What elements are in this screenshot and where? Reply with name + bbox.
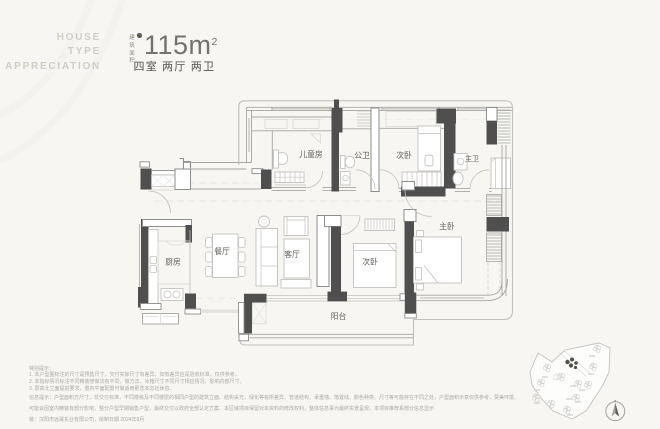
svg-text:厨房: 厨房 xyxy=(165,257,181,267)
svg-text:次卧: 次卧 xyxy=(396,150,412,160)
svg-text:主卫: 主卫 xyxy=(465,154,479,163)
svg-text:公卫: 公卫 xyxy=(354,151,370,160)
svg-text:主卧: 主卧 xyxy=(439,221,455,231)
svg-text:儿童房: 儿童房 xyxy=(299,149,323,159)
svg-text:次卧: 次卧 xyxy=(362,257,378,267)
svg-text:客厅: 客厅 xyxy=(284,249,300,259)
svg-text:阳台: 阳台 xyxy=(331,311,347,321)
svg-text:餐厅: 餐厅 xyxy=(214,247,230,256)
